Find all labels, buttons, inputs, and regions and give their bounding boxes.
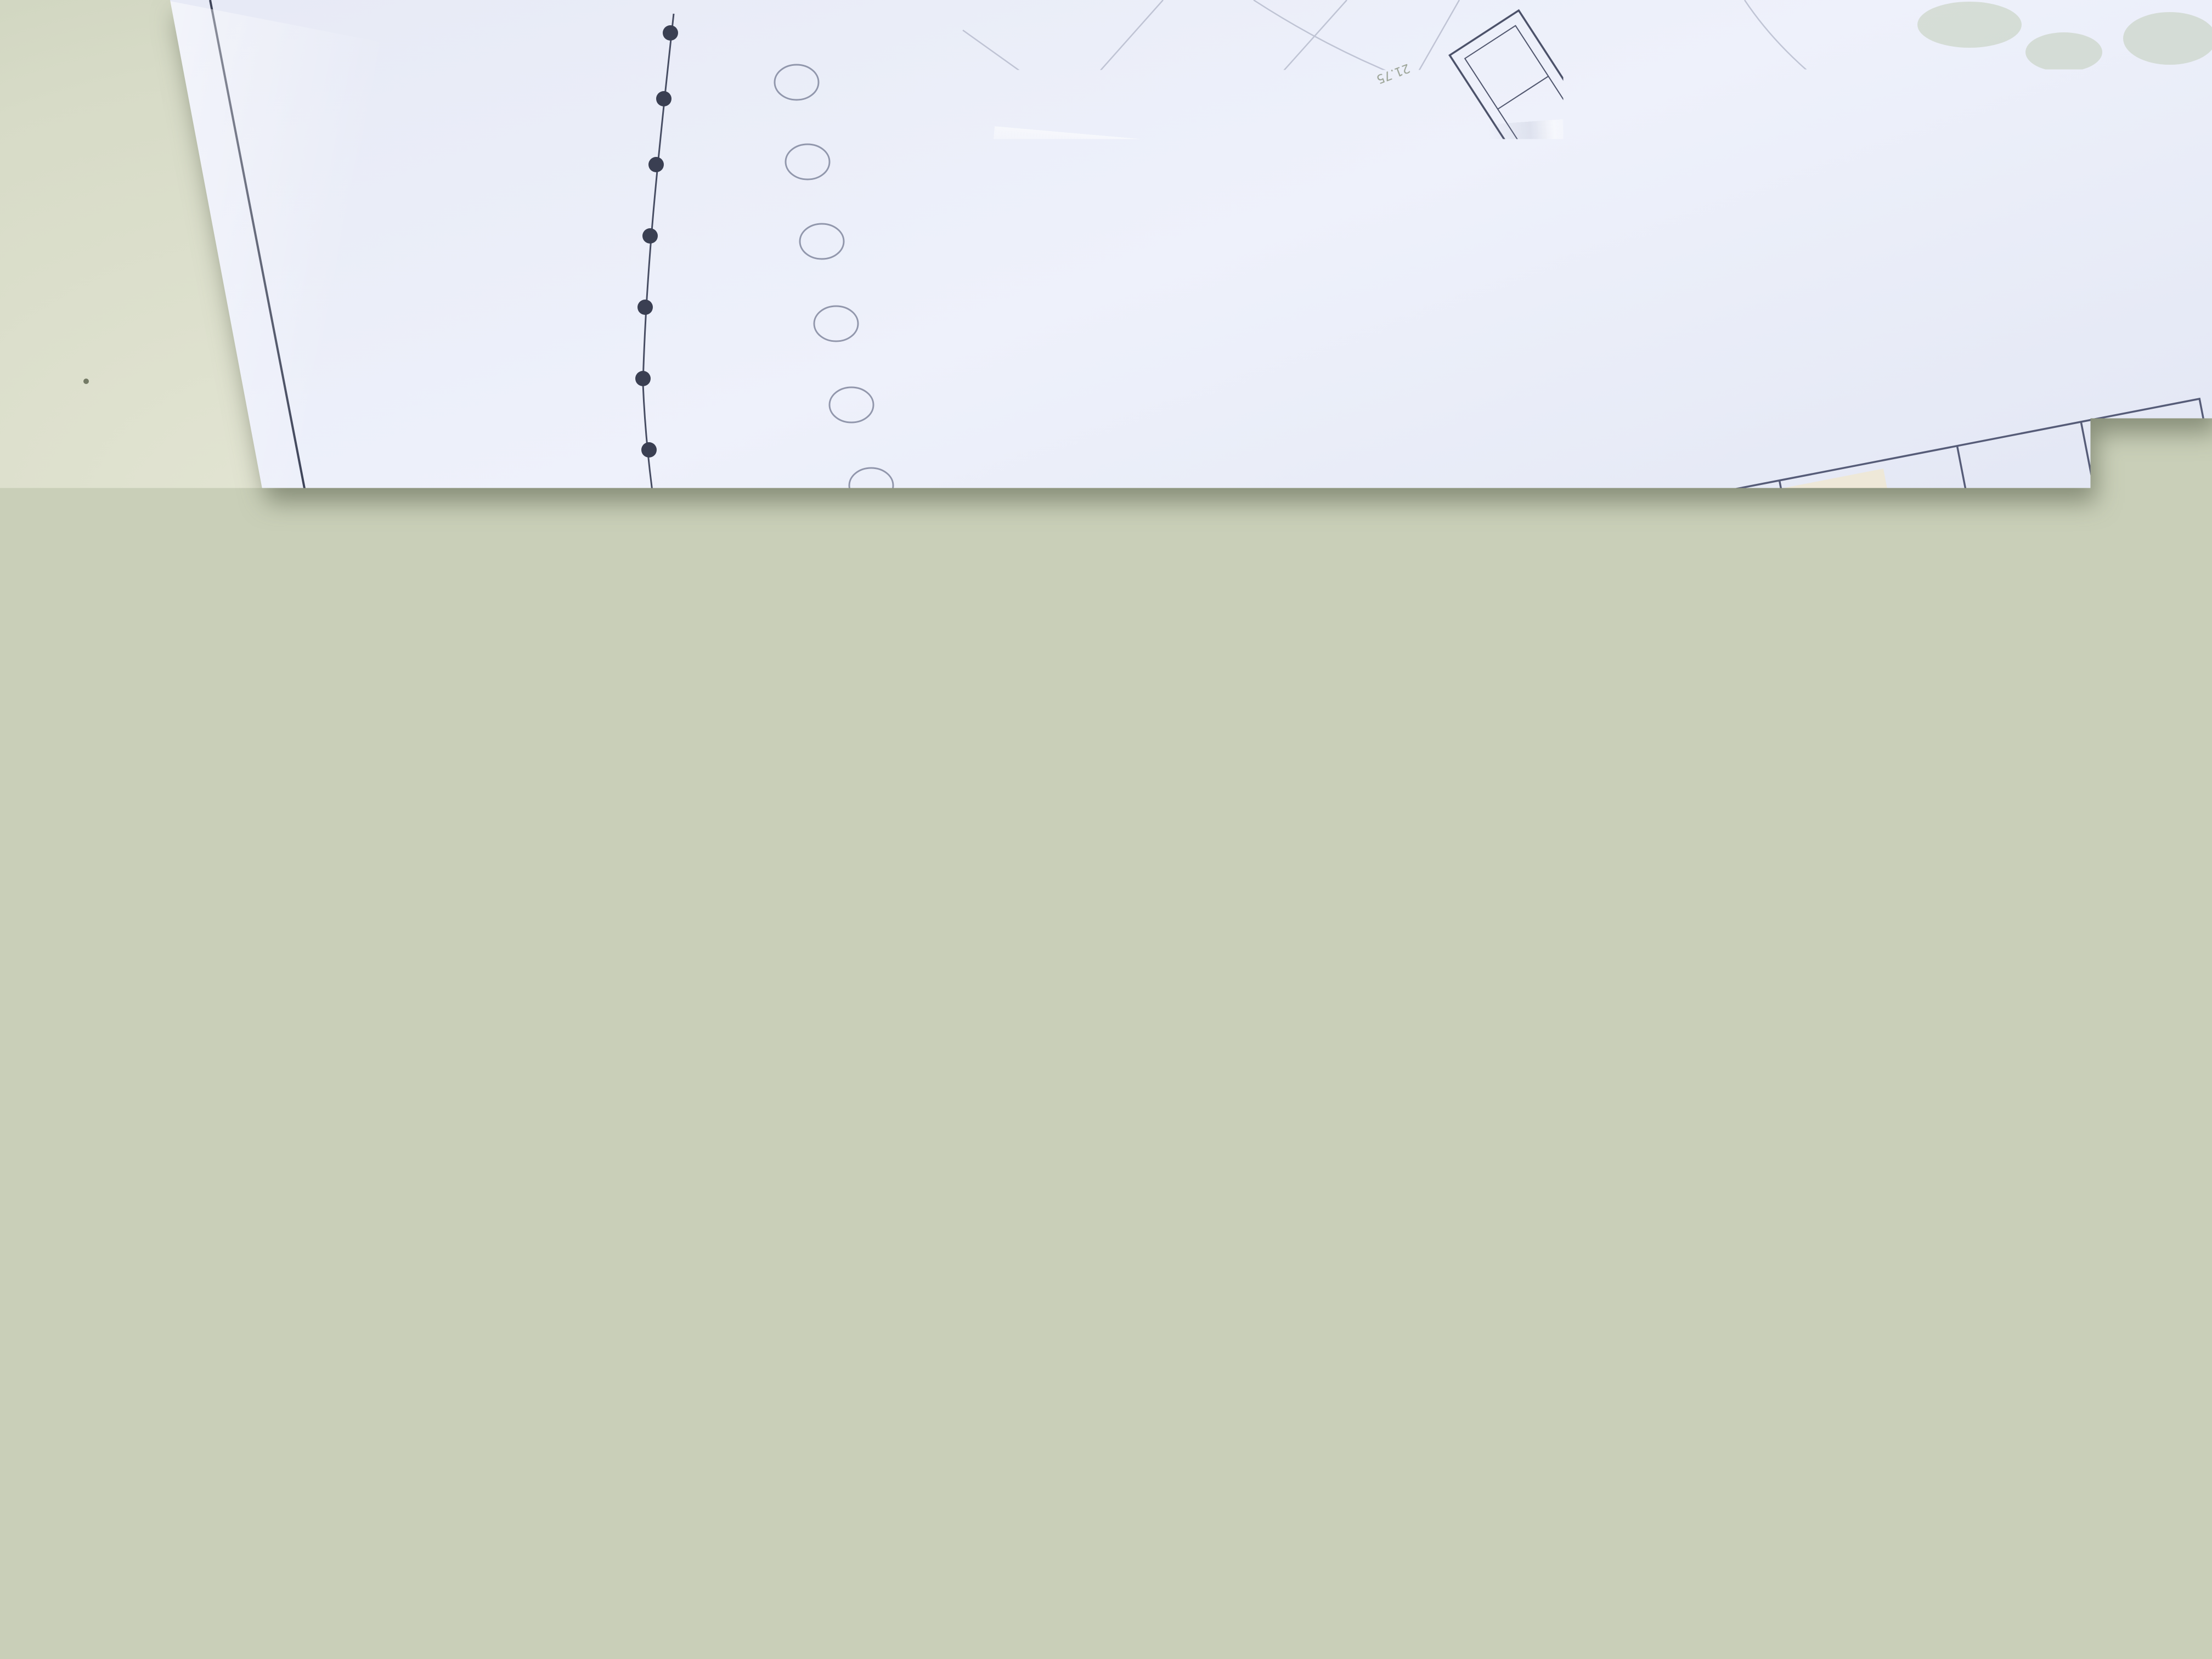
parking-stalls [1241,851,1561,1177]
site-plan: 21.75 21.86 21.63 21.66 21.39 21.71 [981,0,2212,1423]
boundary-road [1209,953,2212,1417]
intake-channel [1449,0,2024,437]
elevation-labels: 21.75 21.86 21.63 21.66 21.39 21.71 [1084,29,1818,1408]
filter-units [1513,509,1944,719]
direction-arrows [1376,1067,2041,1386]
survey-lines [963,0,2212,582]
commune-title: COMMUNE DE SARTE [480,698,1015,817]
main-building [1596,399,2212,855]
aux-equipment [1180,837,1444,1183]
revision-index-box: A [1076,1159,1098,1182]
divider-ornament [693,972,890,1024]
oehc-logo: CULLETTIVITÀ di CORSICA COLLECTIVITÉ de … [580,1285,724,1386]
svg-text:21.75: 21.75 [1374,60,1412,86]
main-title: MISE EN CONFORMITE DE LA STATION DE TRAI… [497,792,1051,1011]
paper-sheet-wrap: clôture [0,0,2212,1659]
vegetation-marks [1917,2,2212,118]
photo-of-plan: clôture [0,0,2212,1659]
svg-text:21.86: 21.86 [1700,888,1737,914]
paper-sheet: clôture [0,0,2212,1659]
svg-text:21.39: 21.39 [1438,1324,1475,1348]
pumps [2010,479,2130,607]
access-roads [1204,97,2192,544]
svg-text:21.63: 21.63 [1657,982,1695,1008]
fence-label: clôture [687,506,740,598]
site-plan-drawing: clôture [0,0,2212,1659]
svg-text:21.71: 21.71 [1585,1335,1623,1359]
